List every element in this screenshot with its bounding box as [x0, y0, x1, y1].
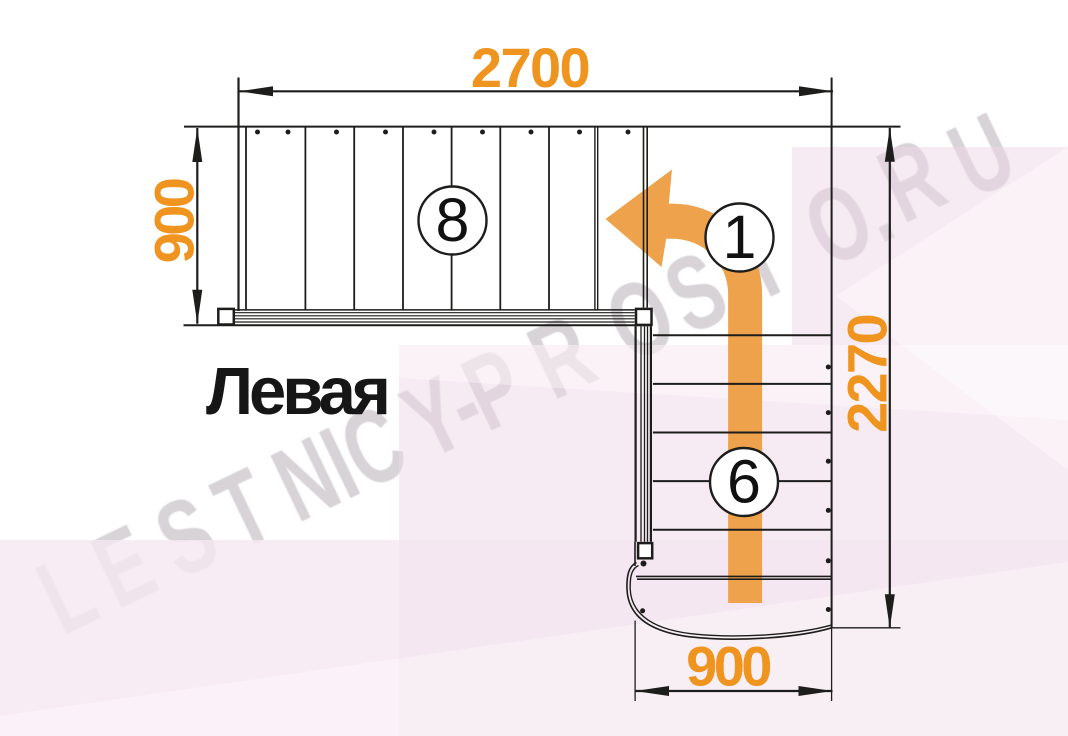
svg-text:8: 8	[436, 186, 470, 254]
svg-text:1: 1	[723, 203, 757, 271]
svg-text:2270: 2270	[836, 315, 899, 433]
svg-text:2700: 2700	[471, 36, 589, 99]
svg-text:900: 900	[686, 635, 770, 698]
svg-text:Левая: Левая	[206, 354, 387, 429]
svg-text:6: 6	[727, 448, 761, 516]
svg-text:900: 900	[143, 179, 206, 263]
